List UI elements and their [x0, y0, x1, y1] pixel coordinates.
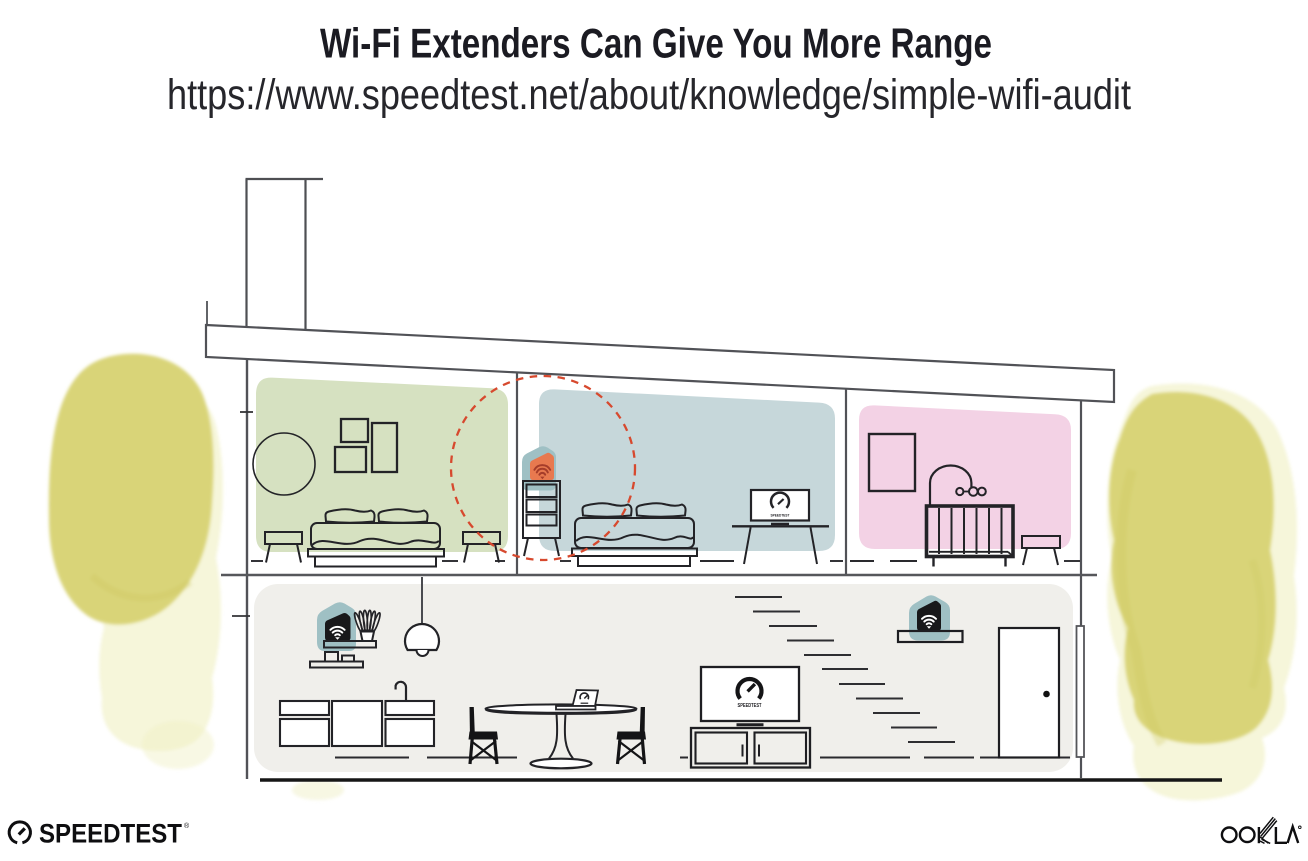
svg-text:https://www.speedtest.net/abou: https://www.speedtest.net/about/knowledg… [167, 71, 1131, 119]
svg-text:SPEEDTEST: SPEEDTEST [771, 513, 790, 518]
svg-text:SPEEDTEST: SPEEDTEST [39, 819, 182, 849]
svg-text:Wi-Fi Extenders Can Give You M: Wi-Fi Extenders Can Give You More Range [320, 20, 992, 67]
svg-text:SPEEDTEST: SPEEDTEST [738, 703, 763, 709]
svg-text:®: ® [184, 822, 190, 830]
